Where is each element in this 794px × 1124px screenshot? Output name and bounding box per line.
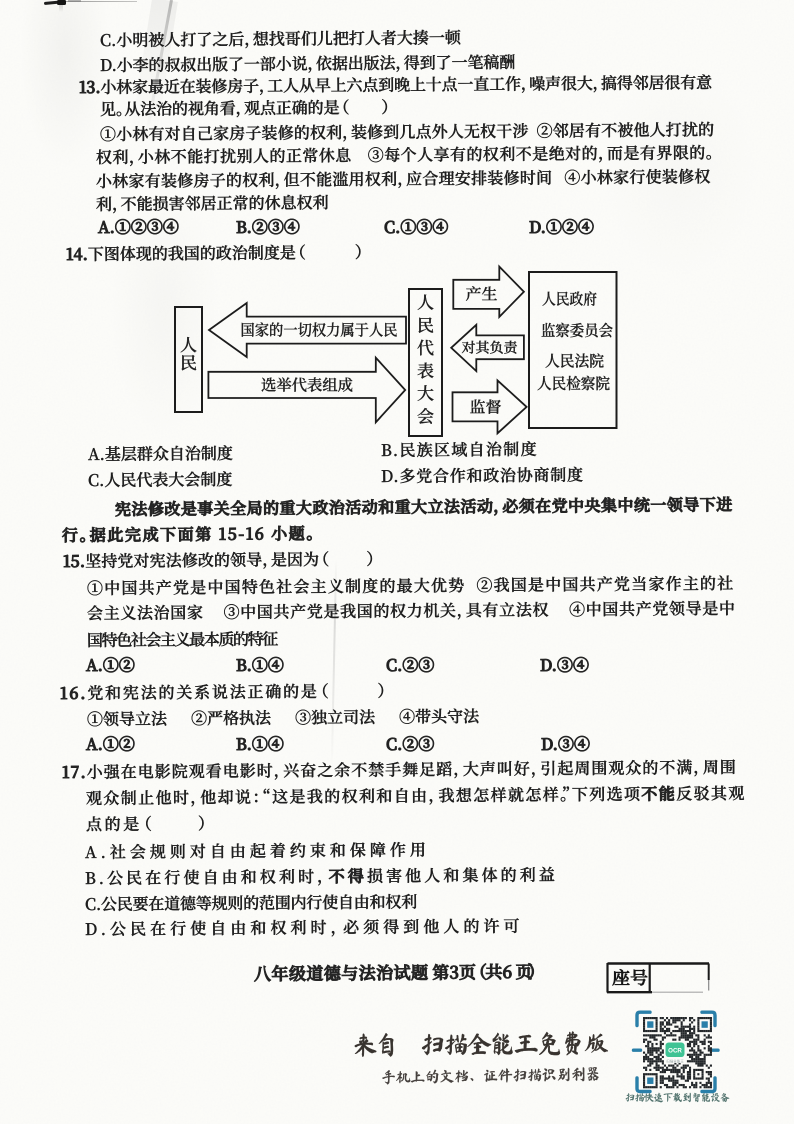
svg-text:人民法院: 人民法院	[545, 350, 604, 372]
svg-text:选举代表组成: 选举代表组成	[261, 373, 353, 395]
svg-text:民: 民	[417, 311, 434, 336]
svg-text:大: 大	[417, 380, 434, 405]
svg-text:代: 代	[417, 334, 434, 359]
svg-text:会: 会	[417, 403, 434, 428]
svg-text:民: 民	[180, 349, 197, 374]
svg-text:产生: 产生	[466, 283, 498, 305]
svg-text:国家的一切权力属于人民: 国家的一切权力属于人民	[241, 319, 398, 341]
svg-text:人民检察院: 人民检察院	[537, 372, 610, 394]
svg-text:人: 人	[417, 289, 434, 314]
svg-text:对其负责: 对其负责	[462, 338, 518, 358]
svg-text:表: 表	[417, 357, 434, 382]
svg-text:监督: 监督	[470, 396, 502, 418]
svg-text:座号: 座号	[612, 965, 649, 990]
svg-text:人民政府: 人民政府	[542, 288, 597, 310]
svg-text:OCR: OCR	[668, 1048, 682, 1055]
svg-text:监察委员会: 监察委员会	[541, 319, 613, 341]
svg-text:扫描全能王: 扫描全能王	[666, 1059, 684, 1064]
